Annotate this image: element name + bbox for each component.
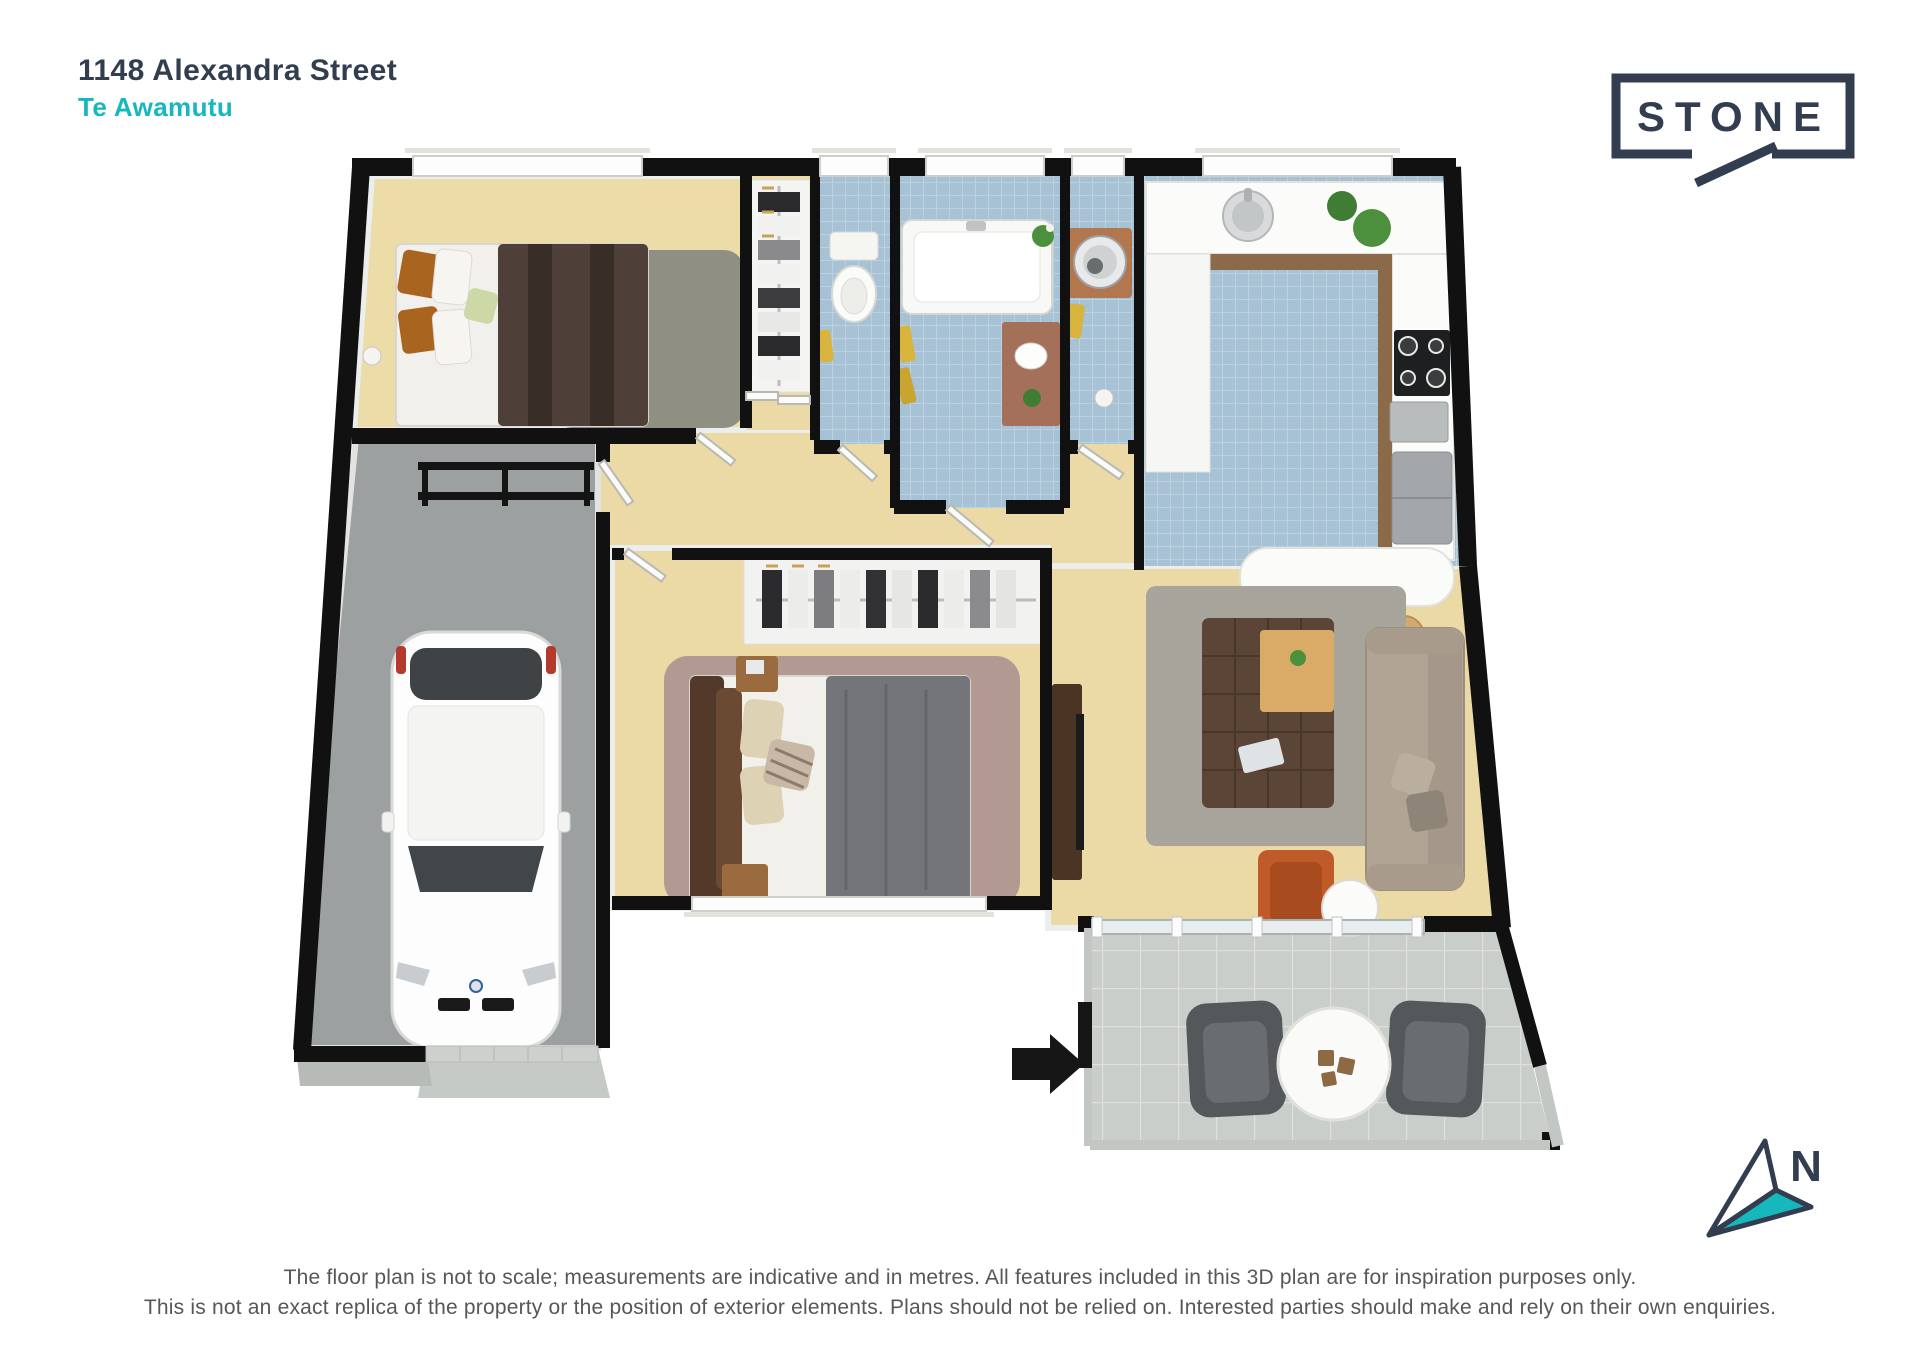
window-laundry [1064,148,1132,176]
wardrobe1-sliding-door [746,392,778,400]
wall-bedroom2-right [1040,548,1052,910]
vanity-basin [1015,343,1047,369]
car-mirror [382,812,394,832]
disclaimer: The floor plan is not to scale; measurem… [0,1266,1920,1326]
car-badge [470,980,482,992]
room-patio [1185,1000,1487,1120]
glass-sliding-door [1092,917,1424,937]
wall-bathroom-bottom [1006,500,1064,514]
kitchen-faucet [1244,188,1252,202]
tray-plant [1290,650,1306,666]
room-bedroom-1 [363,244,744,428]
disclaimer-line-1: The floor plan is not to scale; measurem… [0,1266,1920,1290]
oven [1390,402,1448,442]
car-grille [482,998,514,1011]
bed-1 [396,244,648,426]
floor-plan [0,0,1920,1357]
car-taillight [546,646,556,674]
wardrobe1-sliding-door [778,396,810,404]
bedside-table [722,864,768,900]
entry-door-opening [1078,1002,1092,1068]
wall-laundry-bottom [1064,440,1078,454]
kitchen-counter-top [1146,182,1452,254]
wall-toilet-bottom [814,440,840,454]
wall-kitchen-left [1134,440,1144,570]
wall-bathroom-right [1060,167,1070,508]
wall-bedroom2-top [672,548,1046,560]
disclaimer-line-2: This is not an exact replica of the prop… [0,1296,1920,1320]
room-wardrobe-1 [748,180,810,392]
bed1-duvet-stripe [590,244,614,426]
window-kitchen [1195,148,1400,176]
car-windshield [408,846,544,892]
kitchen-pantry [1146,254,1210,472]
north-label: N [1790,1142,1822,1191]
floor-lamp [1095,389,1113,407]
garage-door [426,1046,598,1062]
window-bedroom1 [405,148,650,176]
car-roof [408,706,544,840]
kitchen-plant [1327,191,1357,221]
bath-faucet [966,221,986,231]
floor-plan-page: 1148 Alexandra Street Te Awamutu STONE [0,0,1920,1357]
wall-laundry-right [1134,167,1144,440]
bed2-duvet [826,676,970,902]
wall-patio-top-right [1424,916,1508,932]
wall-garage-right [596,428,610,462]
wall-toilet-bottom [884,440,894,454]
room-bedroom-2 [664,656,1020,906]
entry-arrow [1012,1034,1084,1094]
laundry-drain [1087,258,1103,274]
wall-garage-bottom [294,1046,426,1062]
sofa [1366,628,1464,890]
kitchen-plant [1353,209,1391,247]
kitchen-sink-basin [1232,200,1264,232]
wall-bedroom2-bottom [612,896,692,910]
wall-toilet-right [890,167,900,508]
window-bedroom2 [684,897,994,917]
window-bathroom [918,148,1052,176]
patio-wall-bottom [1090,1140,1550,1150]
dining-chair-seat [1270,862,1322,922]
car-grille [438,998,470,1011]
wall-wardrobe1-right [810,167,820,440]
north-arrow: N [1687,1123,1847,1263]
toilet-cistern [830,232,878,260]
toilet-seat [841,278,867,314]
window-toilet [812,148,896,176]
bed1-pillow [431,248,472,305]
bathtub-inner [914,232,1040,302]
wall-bedroom1-right [740,167,752,428]
wall-bedroom2-bottom [986,896,1048,910]
wooden-tray [1260,630,1334,712]
vanity [1002,322,1060,426]
wall-bedroom1-bottom [352,428,696,444]
vanity-plant [1023,389,1041,407]
bed1-duvet-stripe [528,244,552,426]
bedside-lamp [363,347,381,365]
tv [1076,714,1084,850]
car-rear-window [410,648,542,700]
room-wardrobe-2 [744,556,1044,644]
bed1-duvet [498,244,648,426]
coffee-table-ottoman [1202,618,1334,808]
wall-bedroom2-top [612,548,624,560]
car-taillight [396,646,406,674]
patio-armchair [1185,1000,1287,1119]
patio-armchair [1385,1000,1487,1119]
bed2-striped-pillow [762,738,817,793]
car [382,632,570,1048]
bed2-headboard-cushion [716,688,742,890]
wall-bathroom-bottom [894,500,946,514]
flower-bloom [1046,224,1054,232]
car-mirror [558,812,570,832]
wardrobe1-clothes [758,188,800,380]
wall-garage-right [596,512,610,1048]
bedside-clock [746,660,764,674]
sofa-pillow [1405,789,1449,833]
